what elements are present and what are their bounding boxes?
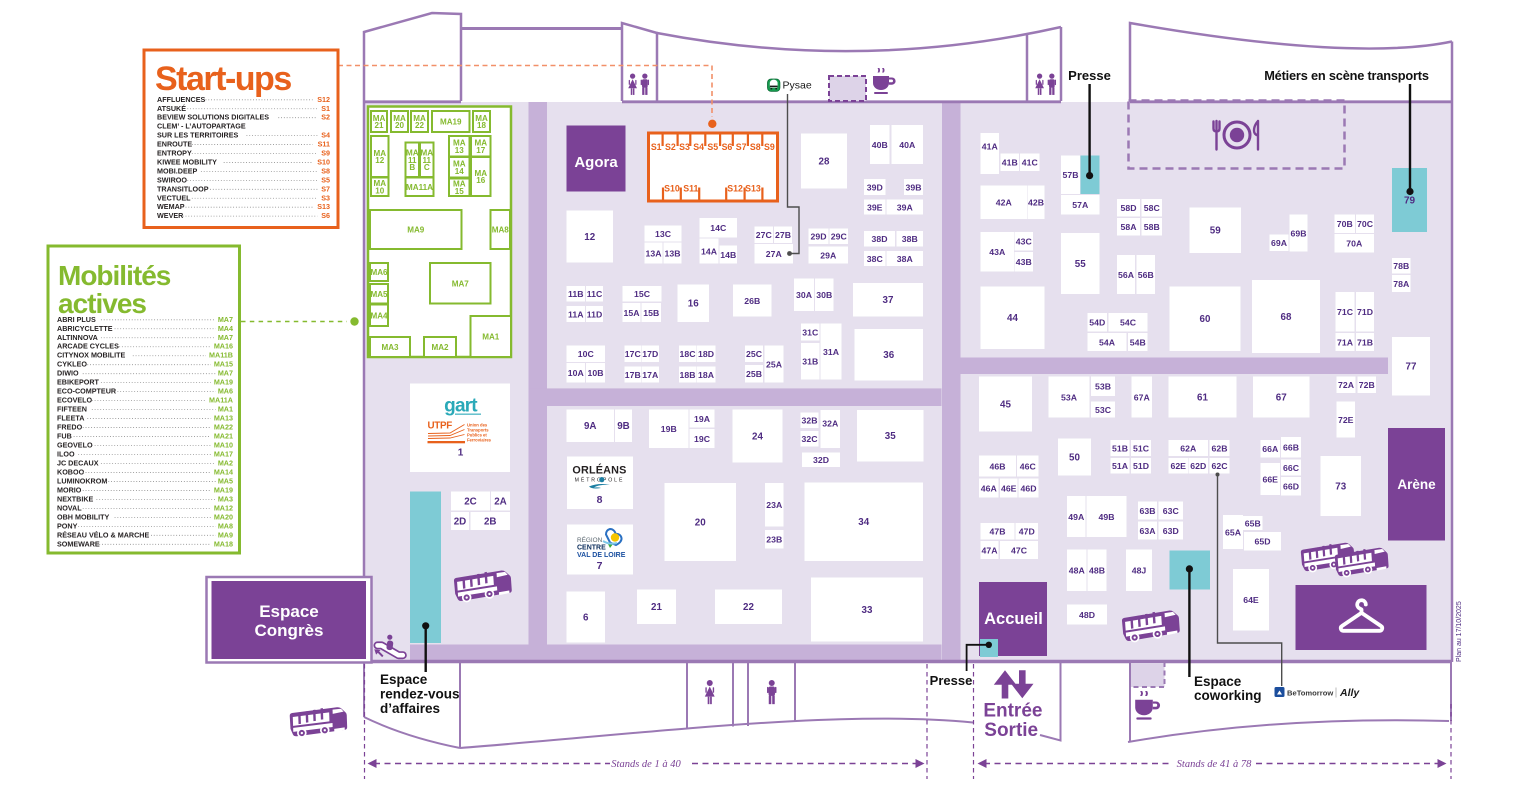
svg-text:17: 17 bbox=[476, 146, 486, 155]
svg-text:43B: 43B bbox=[1016, 257, 1032, 267]
svg-text:8: 8 bbox=[597, 494, 603, 506]
svg-text:CYKLEO: CYKLEO bbox=[57, 360, 87, 369]
svg-text:S5: S5 bbox=[707, 142, 718, 152]
svg-text:C: C bbox=[424, 163, 430, 172]
svg-text:13C: 13C bbox=[655, 229, 672, 239]
svg-text:42A: 42A bbox=[996, 198, 1013, 208]
svg-text:35: 35 bbox=[885, 431, 896, 442]
svg-text:TRANSITLOOP: TRANSITLOOP bbox=[157, 184, 209, 193]
svg-text:13A: 13A bbox=[646, 248, 663, 258]
svg-text:S4: S4 bbox=[693, 142, 704, 152]
svg-text:MA17: MA17 bbox=[214, 450, 233, 459]
svg-text:39B: 39B bbox=[906, 182, 922, 192]
svg-text:40A: 40A bbox=[899, 140, 916, 150]
svg-text:DIWIO: DIWIO bbox=[57, 369, 79, 378]
svg-text:51C: 51C bbox=[1133, 443, 1150, 453]
svg-text:Stands de 41 à 78: Stands de 41 à 78 bbox=[1177, 759, 1252, 770]
svg-text:Mobilités: Mobilités bbox=[58, 260, 171, 291]
svg-text:38B: 38B bbox=[902, 234, 918, 244]
svg-text:53C: 53C bbox=[1095, 405, 1112, 415]
svg-text:31B: 31B bbox=[802, 357, 818, 367]
svg-text:MA19: MA19 bbox=[440, 118, 462, 127]
svg-text:61: 61 bbox=[1197, 392, 1208, 403]
svg-text:MA18: MA18 bbox=[214, 539, 233, 548]
svg-text:24: 24 bbox=[752, 431, 763, 442]
svg-text:Espace: Espace bbox=[380, 672, 428, 687]
svg-text:MA2: MA2 bbox=[218, 458, 233, 467]
svg-text:SWIROO: SWIROO bbox=[157, 175, 187, 184]
svg-text:46E: 46E bbox=[1001, 483, 1017, 493]
svg-text:55: 55 bbox=[1075, 259, 1086, 270]
svg-text:62D: 62D bbox=[1190, 461, 1206, 471]
svg-text:19C: 19C bbox=[694, 434, 711, 444]
svg-text:2C: 2C bbox=[464, 496, 477, 507]
svg-text:Espace: Espace bbox=[259, 602, 319, 621]
svg-text:MA10: MA10 bbox=[214, 441, 233, 450]
svg-text:14B: 14B bbox=[720, 250, 736, 260]
svg-text:14C: 14C bbox=[710, 223, 727, 233]
svg-text:CENTRE: CENTRE bbox=[577, 545, 606, 552]
svg-text:38C: 38C bbox=[867, 254, 884, 264]
svg-text:12: 12 bbox=[584, 232, 595, 243]
svg-text:S1: S1 bbox=[651, 142, 662, 152]
svg-text:S10: S10 bbox=[317, 157, 330, 166]
svg-text:Start-ups: Start-ups bbox=[155, 60, 291, 98]
svg-text:d’affaires: d’affaires bbox=[380, 701, 440, 716]
svg-text:CITYNOX MOBILITE: CITYNOX MOBILITE bbox=[57, 351, 125, 360]
svg-text:23B: 23B bbox=[766, 535, 782, 545]
svg-text:AFFLUENCES: AFFLUENCES bbox=[157, 95, 206, 104]
svg-text:32C: 32C bbox=[802, 434, 819, 444]
svg-text:77: 77 bbox=[1406, 362, 1417, 373]
svg-text:62E: 62E bbox=[1171, 461, 1187, 471]
svg-text:MA3: MA3 bbox=[218, 494, 233, 503]
svg-text:MA6: MA6 bbox=[218, 387, 233, 396]
svg-text:WEMAP: WEMAP bbox=[157, 202, 185, 211]
svg-text:63A: 63A bbox=[1140, 526, 1157, 536]
svg-text:UTPF: UTPF bbox=[428, 421, 453, 432]
svg-text:21: 21 bbox=[651, 602, 662, 613]
svg-text:S12: S12 bbox=[727, 184, 743, 194]
svg-text:S9: S9 bbox=[764, 142, 775, 152]
svg-text:MA19: MA19 bbox=[214, 485, 233, 494]
svg-text:CLEM’ - L’AUTOPARTAGE: CLEM’ - L’AUTOPARTAGE bbox=[157, 122, 246, 131]
svg-text:MA21: MA21 bbox=[214, 432, 233, 441]
svg-text:ECOVELO: ECOVELO bbox=[57, 396, 93, 405]
svg-text:29D: 29D bbox=[811, 232, 827, 242]
svg-text:MA5: MA5 bbox=[218, 476, 233, 485]
svg-text:13B: 13B bbox=[665, 248, 681, 258]
svg-text:18B: 18B bbox=[680, 370, 696, 380]
svg-text:60: 60 bbox=[1200, 314, 1211, 325]
svg-text:PONY: PONY bbox=[57, 521, 78, 530]
svg-text:MA6: MA6 bbox=[370, 268, 388, 277]
svg-text:58C: 58C bbox=[1144, 203, 1161, 213]
svg-text:S3: S3 bbox=[321, 193, 330, 202]
svg-text:VECTUEL: VECTUEL bbox=[157, 193, 191, 202]
svg-text:Presse: Presse bbox=[930, 673, 973, 688]
svg-text:67A: 67A bbox=[1134, 392, 1151, 402]
svg-text:KIWEE MOBILITY: KIWEE MOBILITY bbox=[157, 157, 217, 166]
svg-text:MA19: MA19 bbox=[214, 378, 233, 387]
svg-text:30B: 30B bbox=[816, 290, 832, 300]
svg-text:54C: 54C bbox=[1120, 318, 1137, 328]
svg-text:S13: S13 bbox=[745, 184, 761, 194]
svg-text:71C: 71C bbox=[1337, 307, 1354, 317]
svg-text:RÉSEAU VÉLO & MARCHE: RÉSEAU VÉLO & MARCHE bbox=[57, 530, 149, 539]
svg-text:S11: S11 bbox=[318, 140, 330, 149]
svg-text:44: 44 bbox=[1007, 313, 1018, 324]
svg-text:17B: 17B bbox=[625, 370, 641, 380]
svg-text:MA9: MA9 bbox=[407, 226, 425, 235]
svg-text:11B: 11B bbox=[568, 289, 583, 299]
svg-text:65D: 65D bbox=[1255, 537, 1271, 547]
svg-text:40B: 40B bbox=[872, 140, 888, 150]
svg-text:LUMINOKROM: LUMINOKROM bbox=[57, 476, 107, 485]
svg-text:20: 20 bbox=[395, 121, 405, 130]
svg-text:62A: 62A bbox=[1180, 443, 1197, 453]
svg-text:EBIKEPORT: EBIKEPORT bbox=[57, 378, 100, 387]
svg-text:72E: 72E bbox=[1338, 415, 1354, 425]
svg-text:32D: 32D bbox=[813, 455, 829, 465]
svg-text:47C: 47C bbox=[1011, 545, 1028, 555]
svg-text:GEOVELO: GEOVELO bbox=[57, 441, 93, 450]
svg-text:11C: 11C bbox=[587, 289, 603, 299]
svg-text:71A: 71A bbox=[1337, 337, 1354, 347]
svg-text:B: B bbox=[409, 163, 415, 172]
svg-text:57B: 57B bbox=[1063, 170, 1079, 180]
svg-text:32B: 32B bbox=[802, 416, 818, 426]
svg-text:S13: S13 bbox=[317, 202, 330, 211]
svg-text:78A: 78A bbox=[1393, 279, 1410, 289]
svg-text:29C: 29C bbox=[831, 232, 848, 242]
svg-text:SUR LES TERRITOIRES: SUR LES TERRITOIRES bbox=[157, 131, 239, 140]
svg-text:ARCADE CYCLES: ARCADE CYCLES bbox=[57, 342, 119, 351]
svg-text:MA11B: MA11B bbox=[209, 351, 233, 360]
svg-text:NOVAL: NOVAL bbox=[57, 503, 82, 512]
svg-text:63D: 63D bbox=[1163, 526, 1179, 536]
svg-text:48J: 48J bbox=[1132, 566, 1147, 576]
svg-text:32A: 32A bbox=[822, 418, 839, 428]
svg-text:S9: S9 bbox=[321, 149, 330, 158]
svg-text:SOMEWARE: SOMEWARE bbox=[57, 539, 100, 548]
svg-text:MA3: MA3 bbox=[381, 343, 399, 352]
svg-text:10C: 10C bbox=[578, 349, 595, 359]
svg-text:1: 1 bbox=[458, 448, 464, 459]
svg-text:MA2: MA2 bbox=[431, 343, 449, 352]
svg-text:54D: 54D bbox=[1089, 318, 1105, 328]
svg-text:Entrée: Entrée bbox=[983, 701, 1042, 722]
svg-text:66C: 66C bbox=[1283, 463, 1300, 473]
svg-text:31C: 31C bbox=[802, 327, 819, 337]
svg-text:MA8: MA8 bbox=[218, 521, 233, 530]
svg-text:KOBOO: KOBOO bbox=[57, 467, 85, 476]
svg-text:ABRICYCLETTE: ABRICYCLETTE bbox=[57, 324, 113, 333]
svg-text:S8: S8 bbox=[321, 166, 330, 175]
svg-text:S5: S5 bbox=[321, 175, 330, 184]
svg-text:S10: S10 bbox=[664, 184, 680, 194]
svg-text:ALTINNOVA: ALTINNOVA bbox=[57, 333, 98, 342]
svg-text:11D: 11D bbox=[587, 309, 602, 319]
svg-text:6: 6 bbox=[583, 612, 589, 623]
svg-text:7: 7 bbox=[597, 560, 603, 572]
svg-text:S3: S3 bbox=[679, 142, 690, 152]
svg-text:42B: 42B bbox=[1028, 198, 1044, 208]
svg-text:51D: 51D bbox=[1133, 461, 1149, 471]
svg-text:70B: 70B bbox=[1337, 219, 1353, 229]
svg-text:48D: 48D bbox=[1079, 610, 1095, 620]
svg-text:Plan au 17/10/2025: Plan au 17/10/2025 bbox=[1456, 601, 1463, 662]
svg-text:22: 22 bbox=[415, 121, 425, 130]
svg-text:10A: 10A bbox=[568, 368, 585, 378]
svg-text:25C: 25C bbox=[746, 349, 763, 359]
svg-text:31A: 31A bbox=[823, 347, 840, 357]
svg-text:72B: 72B bbox=[1359, 380, 1375, 390]
svg-text:S1: S1 bbox=[321, 104, 330, 113]
svg-text:43A: 43A bbox=[989, 247, 1006, 257]
svg-text:59: 59 bbox=[1210, 226, 1221, 237]
svg-text:S11: S11 bbox=[683, 184, 698, 194]
svg-text:2B: 2B bbox=[484, 516, 497, 527]
svg-text:25B: 25B bbox=[746, 369, 762, 379]
svg-text:10B: 10B bbox=[588, 368, 604, 378]
svg-text:rendez-vous: rendez-vous bbox=[380, 687, 460, 702]
svg-text:41C: 41C bbox=[1022, 158, 1039, 168]
svg-text:MA20: MA20 bbox=[214, 512, 233, 521]
svg-text:ABRI PLUS: ABRI PLUS bbox=[57, 315, 96, 324]
svg-text:ILOO: ILOO bbox=[57, 450, 75, 459]
svg-text:16: 16 bbox=[476, 176, 486, 185]
svg-text:22: 22 bbox=[743, 602, 754, 613]
svg-text:BEVIEW SOLUTIONS DIGITALES: BEVIEW SOLUTIONS DIGITALES bbox=[157, 113, 269, 122]
svg-text:MORIO: MORIO bbox=[57, 485, 82, 494]
svg-text:41A: 41A bbox=[982, 141, 999, 151]
svg-text:RÉGION: RÉGION bbox=[577, 535, 603, 544]
svg-text:Stands de 1 à 40: Stands de 1 à 40 bbox=[611, 759, 681, 770]
svg-text:16: 16 bbox=[688, 299, 699, 310]
svg-text:FLEETA: FLEETA bbox=[57, 414, 84, 423]
svg-text:53B: 53B bbox=[1095, 382, 1111, 392]
svg-text:MA15: MA15 bbox=[214, 360, 233, 369]
svg-text:34: 34 bbox=[858, 517, 869, 528]
svg-text:48B: 48B bbox=[1089, 566, 1105, 576]
svg-text:26B: 26B bbox=[744, 296, 760, 306]
svg-text:30A: 30A bbox=[796, 290, 813, 300]
svg-text:VAL DE LOIRE: VAL DE LOIRE bbox=[577, 552, 626, 559]
svg-text:15B: 15B bbox=[643, 308, 659, 318]
svg-text:68: 68 bbox=[1281, 312, 1292, 323]
svg-text:coworking: coworking bbox=[1194, 688, 1262, 703]
svg-text:2A: 2A bbox=[494, 496, 507, 507]
svg-text:S12: S12 bbox=[317, 95, 330, 104]
svg-text:17A: 17A bbox=[642, 370, 659, 380]
svg-text:37: 37 bbox=[883, 295, 894, 306]
svg-text:S2: S2 bbox=[321, 113, 330, 122]
svg-text:BeTomorrow: BeTomorrow bbox=[1287, 689, 1333, 698]
svg-text:OBH MOBILITY: OBH MOBILITY bbox=[57, 512, 110, 521]
svg-text:20: 20 bbox=[695, 517, 706, 528]
svg-text:58B: 58B bbox=[1144, 222, 1160, 232]
svg-text:69B: 69B bbox=[1291, 228, 1307, 238]
svg-text:ATSUKÉ: ATSUKÉ bbox=[157, 104, 186, 113]
svg-text:47D: 47D bbox=[1019, 527, 1035, 537]
svg-text:S8: S8 bbox=[750, 142, 761, 152]
svg-text:2D: 2D bbox=[454, 516, 467, 527]
svg-text:MA7: MA7 bbox=[218, 333, 233, 342]
svg-text:79: 79 bbox=[1404, 196, 1416, 207]
svg-text:38D: 38D bbox=[872, 234, 888, 244]
svg-text:53A: 53A bbox=[1061, 392, 1078, 402]
svg-text:Métiers en scène transports: Métiers en scène transports bbox=[1264, 68, 1429, 83]
svg-text:MA8: MA8 bbox=[492, 226, 510, 235]
svg-text:S6: S6 bbox=[722, 142, 733, 152]
svg-text:11A: 11A bbox=[568, 309, 584, 319]
svg-text:17D: 17D bbox=[642, 349, 658, 359]
svg-text:29A: 29A bbox=[820, 250, 837, 260]
svg-text:MA5: MA5 bbox=[370, 290, 388, 299]
svg-text:18C: 18C bbox=[680, 349, 697, 359]
svg-text:Congrès: Congrès bbox=[255, 621, 324, 640]
svg-text:41B: 41B bbox=[1002, 158, 1018, 168]
svg-text:25A: 25A bbox=[766, 359, 783, 369]
svg-text:NEXTBIKE: NEXTBIKE bbox=[57, 494, 94, 503]
svg-text:28: 28 bbox=[819, 156, 830, 167]
svg-text:17C: 17C bbox=[625, 349, 642, 359]
svg-text:70A: 70A bbox=[1346, 239, 1363, 249]
svg-text:70C: 70C bbox=[1357, 219, 1374, 229]
svg-text:63B: 63B bbox=[1140, 506, 1156, 516]
svg-text:MA1: MA1 bbox=[218, 405, 233, 414]
svg-text:63C: 63C bbox=[1163, 506, 1180, 516]
svg-text:64E: 64E bbox=[1243, 595, 1259, 605]
svg-text:67: 67 bbox=[1276, 392, 1287, 403]
svg-text:27B: 27B bbox=[775, 230, 791, 240]
svg-text:MA13: MA13 bbox=[214, 414, 233, 423]
svg-text:69A: 69A bbox=[1271, 238, 1288, 248]
svg-text:48A: 48A bbox=[1069, 566, 1086, 576]
svg-text:FIFTEEN: FIFTEEN bbox=[57, 405, 87, 414]
svg-text:27C: 27C bbox=[756, 230, 773, 240]
svg-text:Ally: Ally bbox=[1339, 687, 1360, 699]
svg-text:ENTROPY: ENTROPY bbox=[157, 149, 192, 158]
svg-text:49B: 49B bbox=[1099, 512, 1115, 522]
svg-text:MA7: MA7 bbox=[452, 279, 470, 288]
svg-text:MA4: MA4 bbox=[370, 311, 388, 320]
svg-text:S7: S7 bbox=[321, 184, 330, 193]
svg-text:Sortie: Sortie bbox=[984, 720, 1038, 741]
svg-text:Pysae: Pysae bbox=[783, 80, 812, 92]
svg-text:12: 12 bbox=[375, 156, 385, 165]
svg-text:38A: 38A bbox=[897, 254, 914, 264]
svg-text:56A: 56A bbox=[1118, 270, 1135, 280]
svg-text:66A: 66A bbox=[1262, 444, 1279, 454]
svg-text:46D: 46D bbox=[1021, 483, 1037, 493]
svg-text:39D: 39D bbox=[867, 182, 883, 192]
svg-text:14A: 14A bbox=[701, 246, 718, 256]
svg-text:Accueil: Accueil bbox=[984, 610, 1043, 628]
svg-text:Ferroviaires: Ferroviaires bbox=[467, 438, 492, 443]
svg-text:ORLÉANS: ORLÉANS bbox=[572, 464, 626, 477]
svg-text:45: 45 bbox=[1000, 399, 1011, 410]
svg-text:MA1: MA1 bbox=[482, 333, 500, 342]
svg-text:66B: 66B bbox=[1283, 443, 1299, 453]
svg-text:S4: S4 bbox=[321, 131, 330, 140]
svg-text:71B: 71B bbox=[1357, 337, 1373, 347]
svg-text:18A: 18A bbox=[698, 370, 715, 380]
svg-text:71D: 71D bbox=[1357, 307, 1373, 317]
svg-text:66D: 66D bbox=[1283, 482, 1299, 492]
svg-text:18D: 18D bbox=[698, 349, 714, 359]
svg-text:S6: S6 bbox=[321, 211, 330, 220]
svg-text:43C: 43C bbox=[1016, 237, 1033, 247]
svg-text:54B: 54B bbox=[1130, 337, 1146, 347]
svg-text:MA11A: MA11A bbox=[406, 183, 433, 192]
svg-text:14: 14 bbox=[455, 167, 465, 176]
svg-text:46A: 46A bbox=[981, 483, 998, 493]
svg-text:50: 50 bbox=[1069, 452, 1080, 463]
svg-text:58A: 58A bbox=[1121, 222, 1138, 232]
svg-text:73: 73 bbox=[1335, 481, 1346, 492]
svg-text:46C: 46C bbox=[1020, 461, 1037, 471]
svg-text:JC DECAUX: JC DECAUX bbox=[57, 458, 99, 467]
svg-text:78B: 78B bbox=[1393, 261, 1409, 271]
svg-text:MA4: MA4 bbox=[218, 324, 233, 333]
svg-text:19B: 19B bbox=[661, 424, 677, 434]
svg-text:66E: 66E bbox=[1263, 474, 1279, 484]
svg-text:49A: 49A bbox=[1068, 512, 1085, 522]
svg-text:gart: gart bbox=[444, 396, 478, 417]
svg-text:65A: 65A bbox=[1225, 527, 1242, 537]
svg-text:47B: 47B bbox=[990, 527, 1006, 537]
svg-text:46B: 46B bbox=[990, 461, 1006, 471]
svg-text:51A: 51A bbox=[1112, 461, 1129, 471]
svg-text:39E: 39E bbox=[867, 202, 883, 212]
svg-text:MA16: MA16 bbox=[214, 342, 233, 351]
svg-text:MA12: MA12 bbox=[214, 503, 233, 512]
svg-text:58D: 58D bbox=[1121, 203, 1137, 213]
svg-text:MA14: MA14 bbox=[214, 467, 233, 476]
svg-text:Presse: Presse bbox=[1068, 68, 1111, 83]
svg-text:57A: 57A bbox=[1072, 200, 1089, 210]
svg-text:FREDO: FREDO bbox=[57, 423, 83, 432]
svg-text:MA22: MA22 bbox=[214, 423, 233, 432]
svg-text:13: 13 bbox=[455, 146, 465, 155]
svg-text:62C: 62C bbox=[1212, 461, 1229, 471]
svg-text:WEVER: WEVER bbox=[157, 211, 184, 220]
svg-text:ECO-COMPTEUR: ECO-COMPTEUR bbox=[57, 387, 117, 396]
svg-text:33: 33 bbox=[862, 605, 873, 616]
svg-text:18: 18 bbox=[477, 121, 487, 130]
svg-text:65B: 65B bbox=[1245, 518, 1261, 528]
svg-text:19A: 19A bbox=[694, 414, 711, 424]
svg-text:51B: 51B bbox=[1112, 443, 1128, 453]
svg-text:ENROUTE: ENROUTE bbox=[157, 140, 192, 149]
svg-text:MA11A: MA11A bbox=[209, 396, 233, 405]
svg-text:MA7: MA7 bbox=[218, 315, 233, 324]
svg-text:MA9: MA9 bbox=[218, 530, 233, 539]
svg-text:MA7: MA7 bbox=[218, 369, 233, 378]
svg-text:10: 10 bbox=[375, 186, 385, 195]
svg-text:9A: 9A bbox=[584, 421, 597, 432]
svg-text:Agora: Agora bbox=[574, 154, 618, 171]
svg-text:Arène: Arène bbox=[1397, 477, 1436, 492]
svg-text:47A: 47A bbox=[982, 545, 999, 555]
svg-text:9B: 9B bbox=[617, 421, 630, 432]
svg-text:15C: 15C bbox=[634, 289, 651, 299]
svg-text:15: 15 bbox=[455, 187, 465, 196]
svg-text:36: 36 bbox=[883, 350, 894, 361]
svg-text:FUB: FUB bbox=[57, 432, 72, 441]
